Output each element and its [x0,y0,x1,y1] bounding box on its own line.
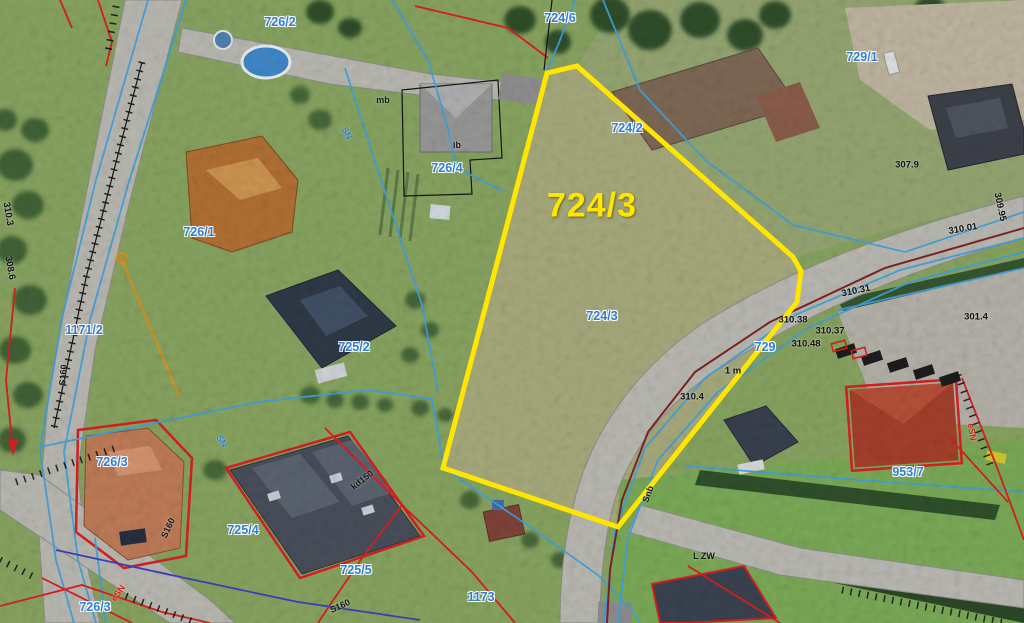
terrain-noise-texture [0,0,1024,623]
aerial-basemap [0,0,1024,623]
map-viewport[interactable]: 724/3 726/2724/6729/1724/2726/4726/11171… [0,0,1024,623]
